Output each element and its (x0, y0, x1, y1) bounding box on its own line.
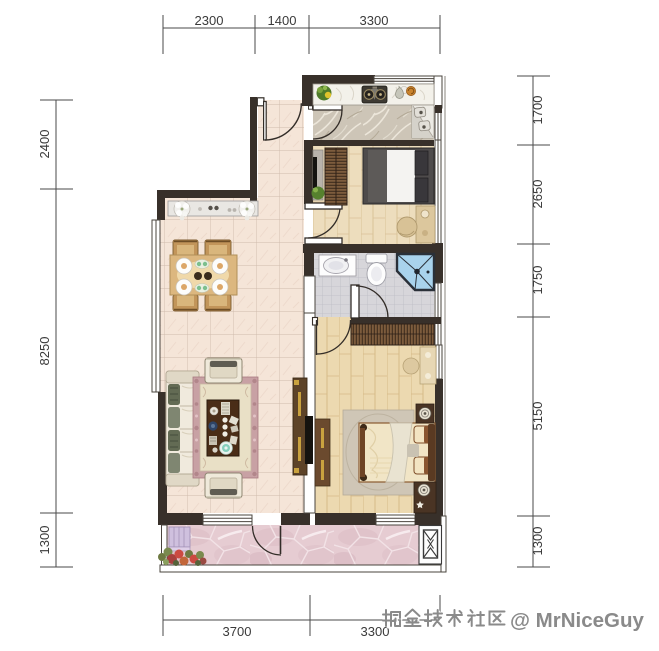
svg-text:5150: 5150 (530, 402, 545, 431)
svg-text:1700: 1700 (530, 96, 545, 125)
svg-text:1300: 1300 (530, 527, 545, 556)
svg-text:1300: 1300 (37, 526, 52, 555)
svg-text:8250: 8250 (37, 337, 52, 366)
svg-text:1750: 1750 (530, 266, 545, 295)
svg-text:3300: 3300 (360, 13, 389, 28)
svg-text:2400: 2400 (37, 130, 52, 159)
svg-text:3700: 3700 (223, 624, 252, 639)
svg-text:1400: 1400 (268, 13, 297, 28)
svg-text:2650: 2650 (530, 180, 545, 209)
svg-text:@ MrNiceGuy: @ MrNiceGuy (510, 609, 645, 632)
svg-text:2300: 2300 (195, 13, 224, 28)
